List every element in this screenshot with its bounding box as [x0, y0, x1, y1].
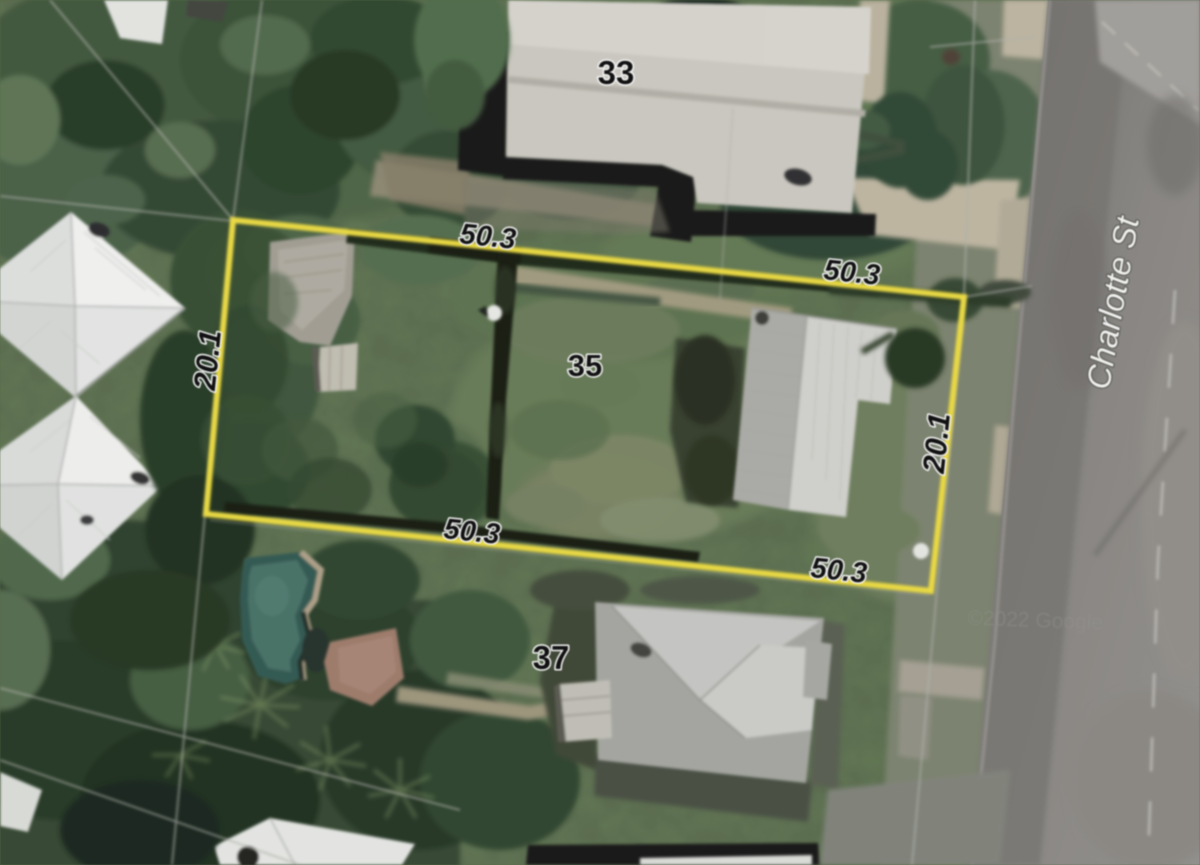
svg-text:©2022 Google: ©2022 Google — [967, 607, 1103, 635]
svg-text:37: 37 — [533, 639, 570, 676]
svg-text:20.1: 20.1 — [916, 411, 957, 476]
svg-text:50.3: 50.3 — [458, 218, 517, 256]
svg-text:33: 33 — [598, 54, 635, 91]
svg-text:35: 35 — [568, 348, 602, 383]
svg-text:20.1: 20.1 — [187, 328, 228, 393]
svg-text:50.3: 50.3 — [442, 513, 501, 551]
svg-text:50.3: 50.3 — [822, 254, 881, 292]
svg-text:50.3: 50.3 — [809, 552, 868, 590]
